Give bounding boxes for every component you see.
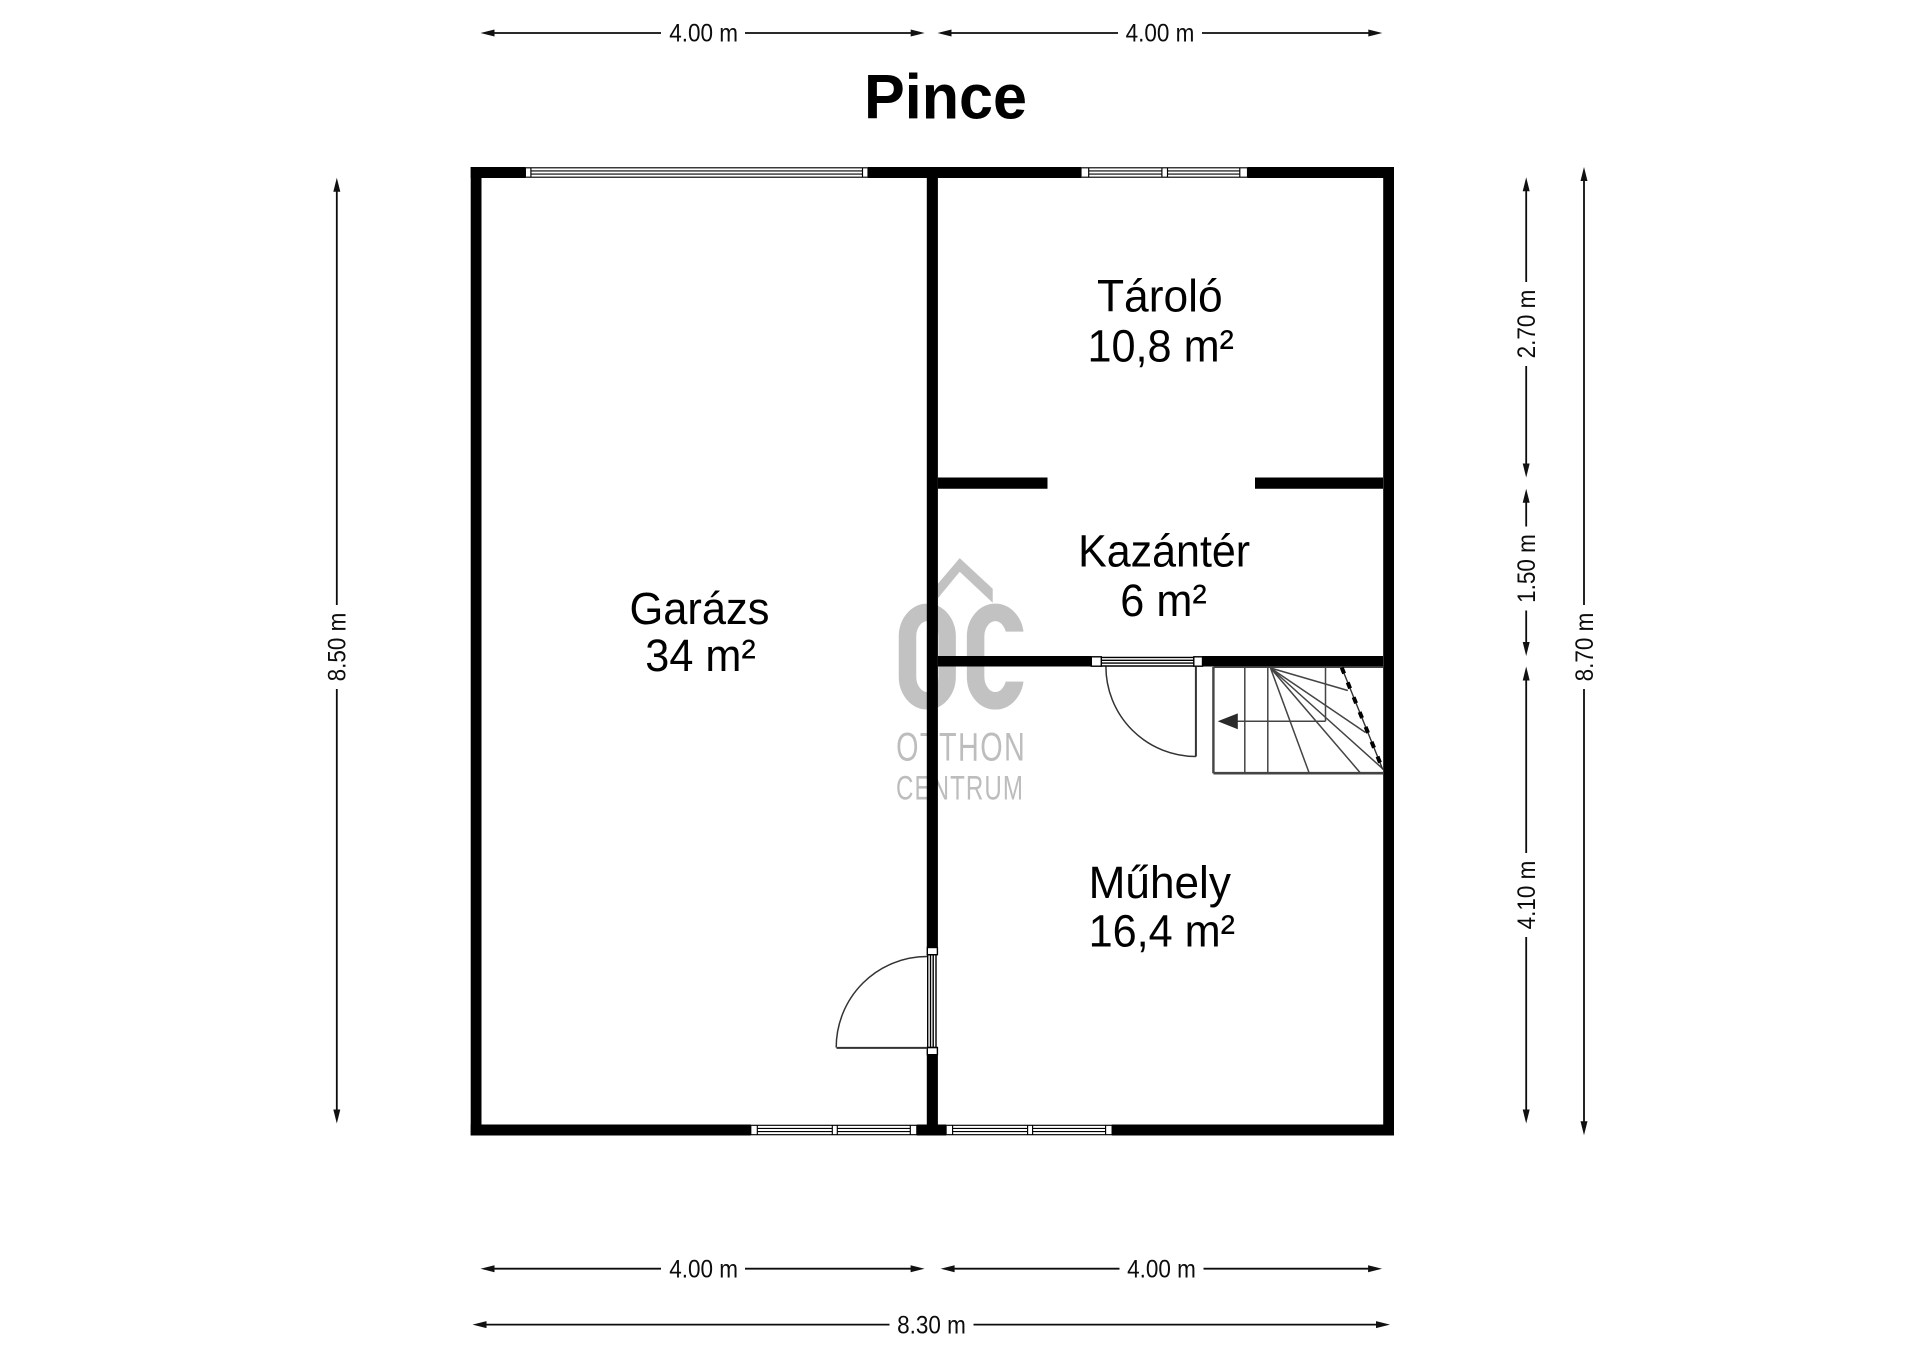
svg-text:Pince: Pince xyxy=(864,62,1027,132)
svg-text:2.70 m: 2.70 m xyxy=(1513,290,1541,359)
svg-text:Tároló: Tároló xyxy=(1097,270,1223,322)
svg-text:4.00 m: 4.00 m xyxy=(1126,20,1195,48)
svg-text:4.00 m: 4.00 m xyxy=(669,20,738,48)
svg-text:34 m²: 34 m² xyxy=(645,631,755,681)
svg-text:4.00 m: 4.00 m xyxy=(1127,1255,1196,1283)
svg-text:8.70 m: 8.70 m xyxy=(1571,613,1599,682)
svg-text:16,4 m²: 16,4 m² xyxy=(1089,907,1235,957)
svg-text:10,8 m²: 10,8 m² xyxy=(1087,322,1233,372)
svg-text:Műhely: Műhely xyxy=(1089,857,1232,908)
svg-text:Garázs: Garázs xyxy=(629,584,769,634)
svg-text:1.50 m: 1.50 m xyxy=(1513,534,1541,603)
svg-text:8.50 m: 8.50 m xyxy=(324,613,352,682)
svg-text:OTTHON: OTTHON xyxy=(896,725,1026,770)
svg-text:4.10 m: 4.10 m xyxy=(1513,861,1541,930)
svg-text:6 m²: 6 m² xyxy=(1120,576,1206,626)
svg-text:Kazántér: Kazántér xyxy=(1078,527,1250,577)
svg-text:4.00 m: 4.00 m xyxy=(669,1255,738,1283)
svg-text:8.30 m: 8.30 m xyxy=(897,1311,966,1339)
svg-text:CENTRUM: CENTRUM xyxy=(896,770,1024,808)
